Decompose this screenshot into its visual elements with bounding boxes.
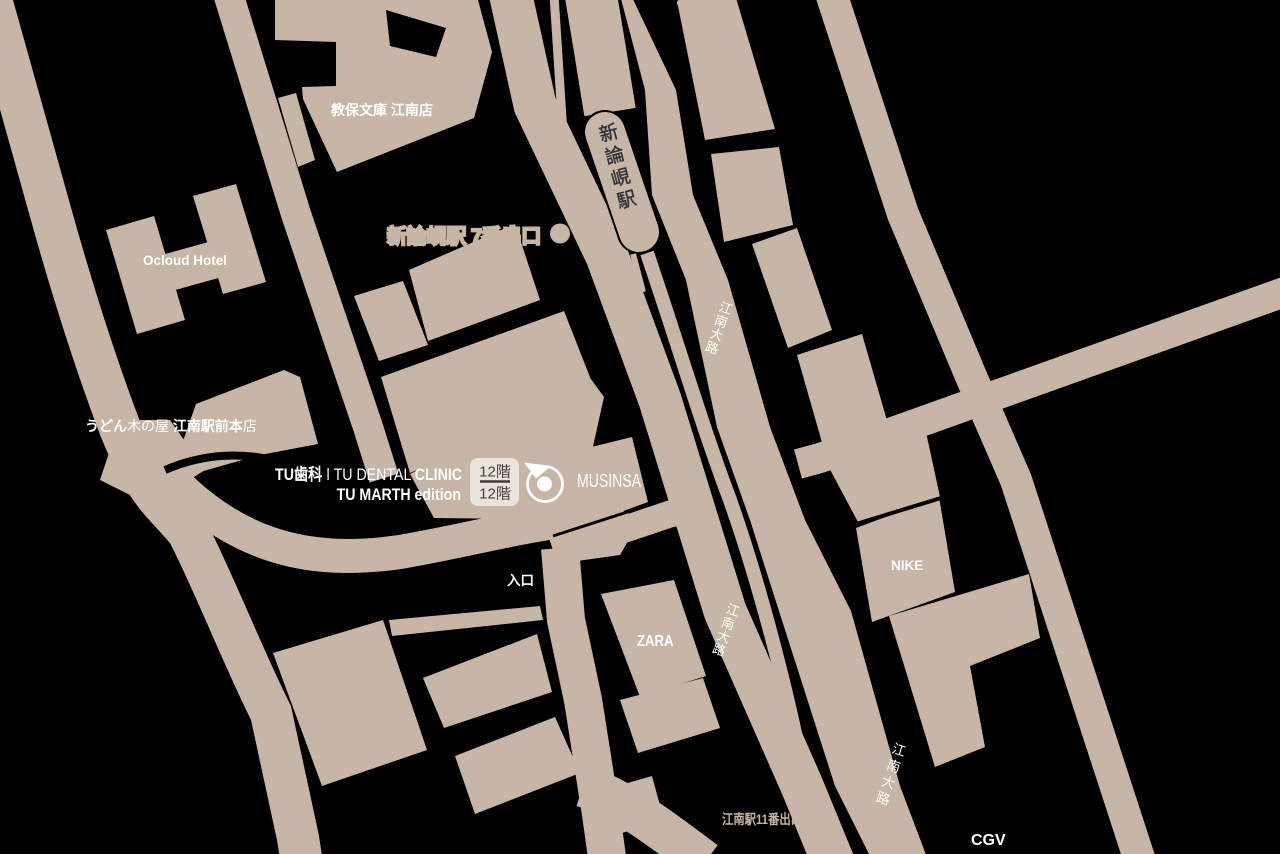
svg-text:12階: 12階	[479, 464, 511, 481]
svg-text:TU歯科 ǀ TU DENTAL CLINIC: TU歯科 ǀ TU DENTAL CLINIC	[275, 464, 462, 484]
svg-text:TU MARTH edition: TU MARTH edition	[337, 486, 461, 504]
svg-text:うどん木の屋 江南駅前本店: うどん木の屋 江南駅前本店	[85, 418, 257, 434]
svg-text:ZARA: ZARA	[637, 633, 674, 650]
svg-text:MUSINSA: MUSINSA	[577, 470, 641, 491]
svg-text:江南駅11番出口: 江南駅11番出口	[722, 811, 802, 827]
svg-text:入口: 入口	[507, 573, 534, 588]
svg-text:Ocloud Hotel: Ocloud Hotel	[143, 253, 227, 268]
svg-text:CGV: CGV	[971, 832, 1006, 849]
svg-text:12階: 12階	[479, 486, 511, 503]
svg-text:教保文庫 江南店: 教保文庫 江南店	[331, 102, 433, 118]
svg-text:新論峴駅 7番出口: 新論峴駅 7番出口	[387, 224, 541, 248]
svg-text:NIKE: NIKE	[891, 558, 923, 573]
